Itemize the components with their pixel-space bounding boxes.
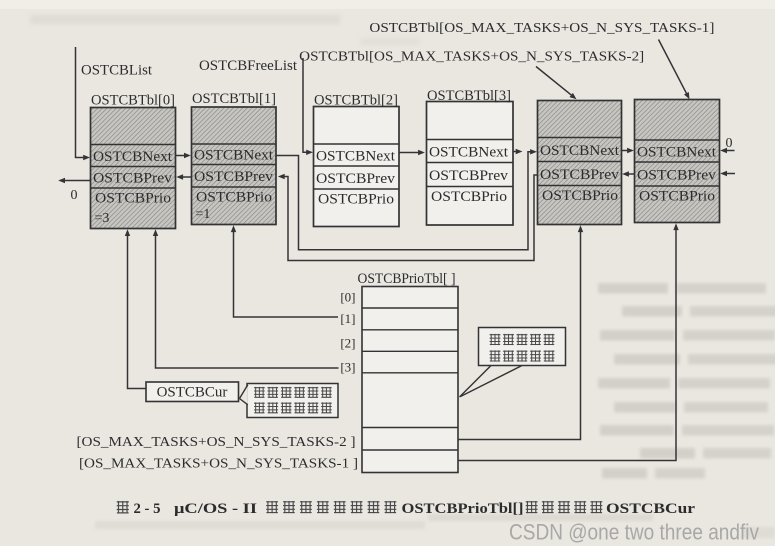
svg-text:2 - 5: 2 - 5 — [134, 501, 161, 517]
svg-text:OSTCBTbl[2]: OSTCBTbl[2] — [314, 93, 398, 109]
svg-text:OSTCBPrioTbl[]: OSTCBPrioTbl[] — [402, 501, 524, 517]
svg-text:OSTCBPrio: OSTCBPrio — [196, 190, 272, 206]
svg-text:OSTCBCur: OSTCBCur — [606, 501, 696, 517]
svg-text:OSTCBPrio: OSTCBPrio — [431, 189, 507, 205]
svg-text:OSTCBPrev: OSTCBPrev — [316, 171, 396, 187]
svg-text:OSTCBTbl[0]: OSTCBTbl[0] — [91, 93, 175, 109]
svg-text:0: 0 — [726, 136, 733, 151]
svg-text:OSTCBCur: OSTCBCur — [157, 385, 228, 401]
svg-text:OSTCBPrioTbl[ ]: OSTCBPrioTbl[ ] — [358, 271, 456, 287]
svg-text:OSTCBNext: OSTCBNext — [637, 144, 717, 160]
svg-text:OSTCBPrev: OSTCBPrev — [429, 168, 509, 184]
svg-text:[3]: [3] — [340, 360, 355, 375]
svg-text:OSTCBPrio: OSTCBPrio — [318, 192, 394, 208]
svg-text:[OS_MAX_TASKS+OS_N_SYS_TASKS-2: [OS_MAX_TASKS+OS_N_SYS_TASKS-2 ] — [77, 435, 356, 450]
svg-text:OSTCBNext: OSTCBNext — [194, 148, 274, 164]
svg-text:OSTCBNext: OSTCBNext — [93, 149, 173, 165]
svg-text:OSTCBTbl[OS_MAX_TASKS+OS_N_SYS: OSTCBTbl[OS_MAX_TASKS+OS_N_SYS_TASKS-2] — [299, 49, 644, 64]
svg-text:OSTCBPrev: OSTCBPrev — [93, 171, 173, 187]
svg-text:[1]: [1] — [340, 311, 355, 326]
svg-text:OSTCBFreeList: OSTCBFreeList — [199, 58, 298, 74]
svg-text:OSTCBPrio: OSTCBPrio — [95, 191, 171, 207]
svg-text:OSTCBNext: OSTCBNext — [540, 143, 620, 159]
svg-text:μC/OS - II: μC/OS - II — [174, 501, 257, 517]
svg-text:OSTCBPrev: OSTCBPrev — [540, 167, 620, 183]
svg-text:OSTCBTbl[3]: OSTCBTbl[3] — [427, 88, 511, 104]
svg-text:OSTCBNext: OSTCBNext — [316, 148, 396, 164]
svg-text:0: 0 — [71, 188, 78, 203]
svg-text:OSTCBPrev: OSTCBPrev — [637, 167, 717, 183]
svg-text:OSTCBNext: OSTCBNext — [429, 144, 509, 160]
svg-text:OSTCBTbl[OS_MAX_TASKS+OS_N_SYS: OSTCBTbl[OS_MAX_TASKS+OS_N_SYS_TASKS-1] — [369, 20, 714, 35]
svg-text:OSTCBPrev: OSTCBPrev — [194, 169, 274, 185]
svg-text:[OS_MAX_TASKS+OS_N_SYS_TASKS-1: [OS_MAX_TASKS+OS_N_SYS_TASKS-1 ] — [79, 457, 358, 472]
svg-text:=1: =1 — [196, 207, 211, 222]
svg-text:OSTCBPrio: OSTCBPrio — [542, 188, 618, 204]
svg-text:OSTCBList: OSTCBList — [81, 63, 153, 79]
svg-text:=3: =3 — [95, 211, 110, 226]
svg-text:OSTCBPrio: OSTCBPrio — [639, 189, 715, 205]
svg-text:OSTCBTbl[1]: OSTCBTbl[1] — [192, 91, 276, 107]
svg-text:CSDN @one two three andfiv: CSDN @one two three andfiv — [509, 520, 759, 545]
svg-text:[0]: [0] — [340, 290, 355, 305]
svg-text:[2]: [2] — [340, 336, 355, 351]
